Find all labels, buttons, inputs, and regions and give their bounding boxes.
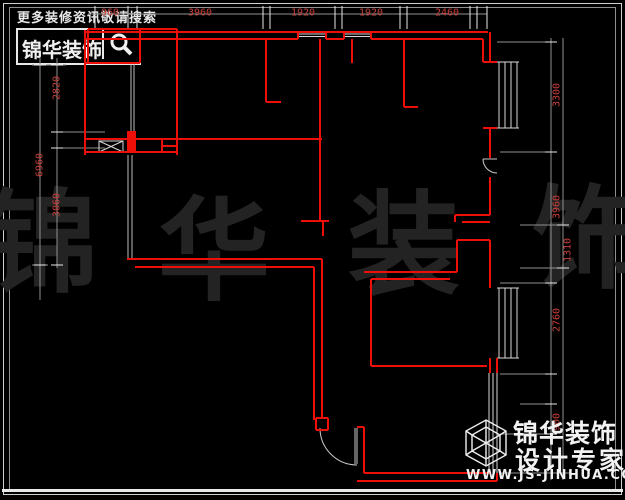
dimension-label: 1310 [563, 238, 574, 262]
watermark-character: 装 [348, 190, 460, 302]
watermark-character: 锦 [0, 188, 98, 300]
dimension-label: 960 [101, 8, 119, 19]
dimension-label: 3300 [552, 83, 563, 107]
dimension-label: 3060 [52, 193, 63, 217]
magnifier-icon [104, 30, 137, 59]
dimension-label: 2820 [52, 76, 63, 100]
cube-hexagon-icon [462, 417, 510, 469]
dimension-label: 3960 [188, 8, 212, 19]
footer-website-text: WWW.JS-JINHUA.COM [466, 468, 625, 483]
watermark-character: 饰 [532, 184, 625, 296]
floorplan-image: 锦 华 装 饰 更多装修资讯敬请搜索 锦华装饰 [0, 0, 625, 500]
tagline-text: 更多装修资讯敬请搜索 [17, 7, 157, 26]
dimension-label: 6960 [35, 153, 46, 177]
dimension-label: 2760 [552, 308, 563, 332]
dimension-label: 1920 [291, 8, 315, 19]
watermark-character: 华 [158, 196, 270, 308]
logo-search-box: 锦华装饰 [16, 28, 141, 65]
logo-brand-text: 锦华装饰 [22, 34, 102, 63]
dimension-label: 3960 [552, 195, 563, 219]
dimension-label: 1920 [359, 8, 383, 19]
bottom-frame-line [2, 489, 623, 492]
dimension-label: 2460 [435, 8, 459, 19]
